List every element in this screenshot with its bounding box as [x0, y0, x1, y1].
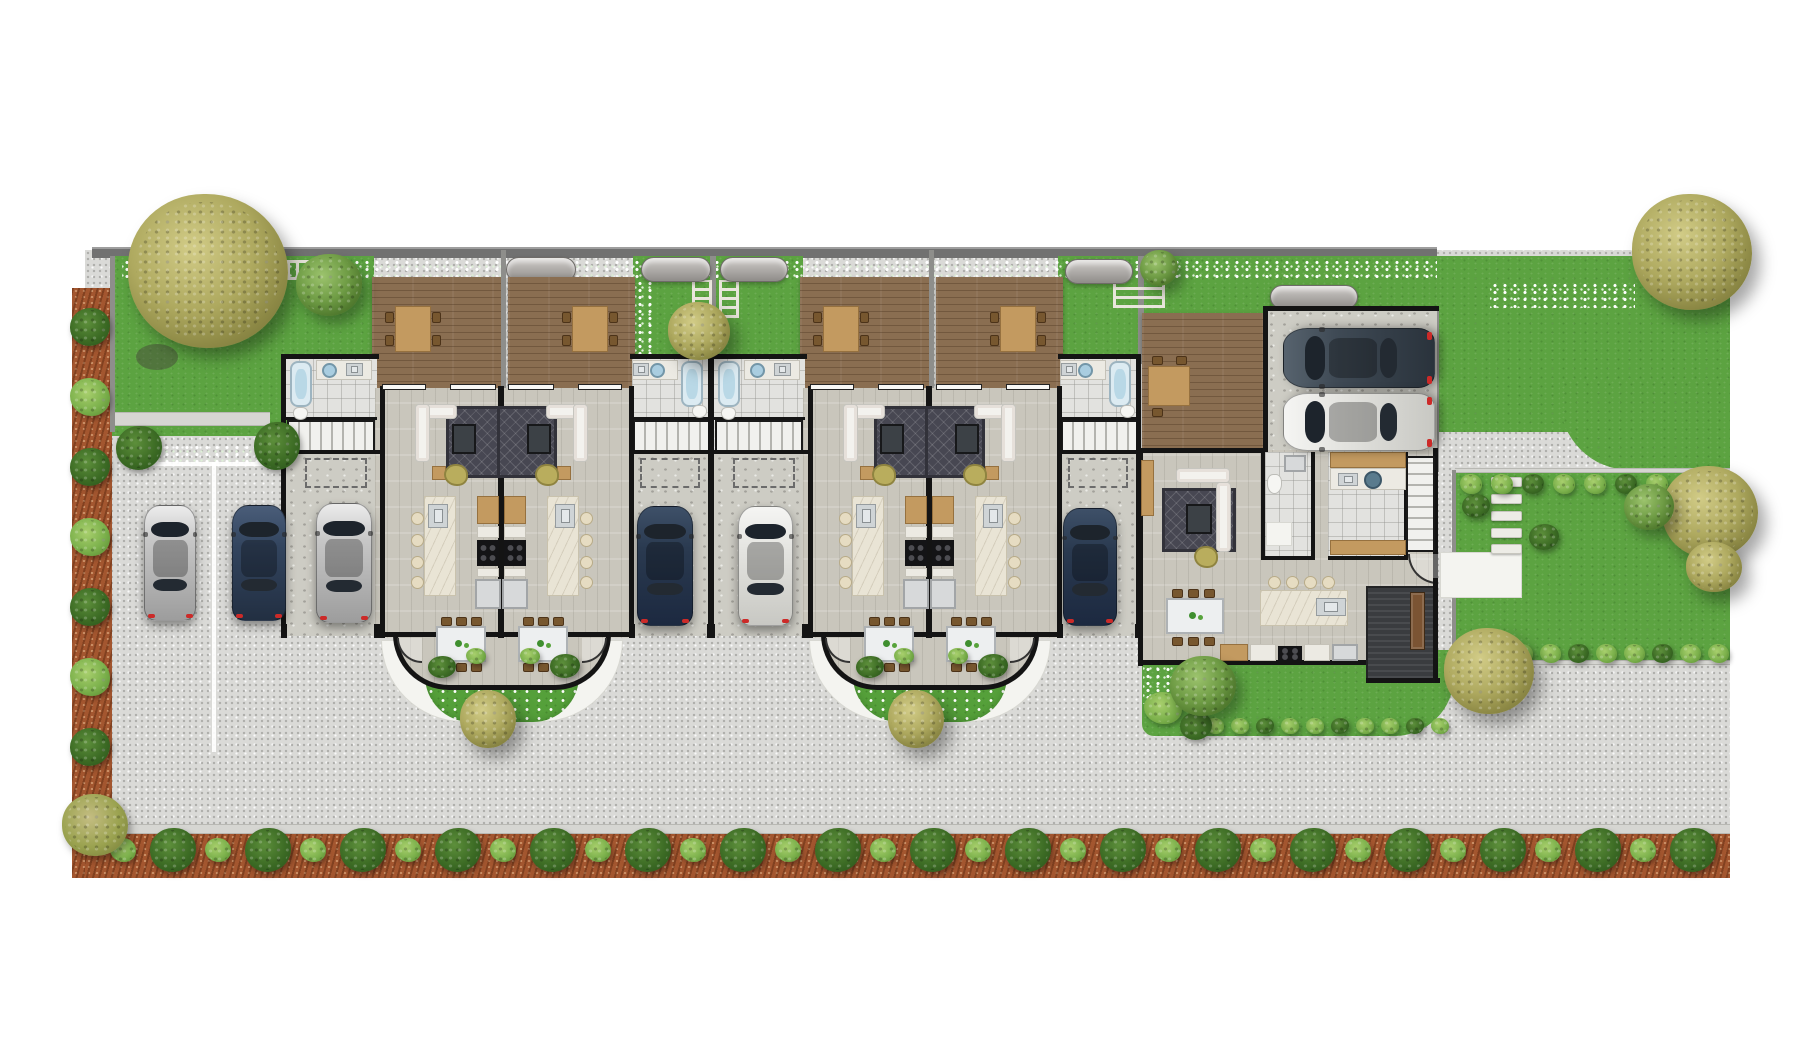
duplex-b-deck1-table — [823, 306, 859, 352]
boundary-hedge-bottom-light-4 — [490, 838, 516, 862]
car-garage-white-tl-r — [1427, 397, 1432, 405]
duplex-b-garden-bush-4 — [948, 648, 968, 664]
duplex-b-living1-armchair — [872, 464, 896, 486]
duplex-a-living2-sofa-b — [573, 404, 588, 462]
righthouse-appliance-2 — [1250, 644, 1276, 661]
car-carport4-navy-roof — [1072, 544, 1108, 581]
duplex-a-kitchen2-cabinet — [504, 496, 526, 524]
car-carport2-navy-body — [637, 506, 693, 626]
boundary-hedge-left-5 — [70, 658, 110, 696]
duplex-b-wall-bath2-top — [1058, 354, 1141, 359]
car-carport1-silver-mir-r — [368, 531, 373, 536]
righthouse-bath-wall-right — [1311, 452, 1315, 560]
duplex-a-deck2-chair-1 — [562, 312, 571, 323]
boundary-hedge-left-1 — [70, 378, 110, 416]
car-garage-suv — [1283, 328, 1433, 386]
righthouse-coffee-table — [1186, 504, 1212, 534]
car-carport2-navy — [637, 506, 691, 624]
duplex-b-deck1-chair-4 — [860, 335, 869, 346]
duplex-b-garden-bush-3 — [894, 648, 914, 664]
righthouse-deck-table — [1148, 366, 1190, 406]
duplex-a-deck1-chair-4 — [432, 335, 441, 346]
duplex-a-living1-sofa-b — [415, 404, 430, 462]
duplex-b-dining1-chair-6 — [899, 663, 910, 672]
duplex-a-deck1-chair-2 — [385, 335, 394, 346]
duplex-b-kitchen1-fridge — [903, 579, 929, 609]
car-parking-blue-tl-r — [275, 614, 282, 618]
rightband-hedge-top-4 — [1584, 474, 1606, 494]
car-carport4-navy-mir-l — [1062, 536, 1067, 541]
duplex-b-wall-stub-1 — [709, 624, 715, 638]
car-parking-silver-mir-l — [143, 532, 148, 537]
duplex-b-living2-side-table — [985, 466, 999, 480]
water-tank-2 — [641, 257, 711, 282]
car-carport1-silver-tl-r — [361, 616, 369, 620]
hedge-rows-righthouse — [1113, 284, 1165, 308]
boundary-hedge-bottom-light-13 — [1345, 838, 1371, 862]
duplex-b-wall-stub-2 — [802, 624, 808, 638]
boundary-hedge-bottom-light-12 — [1250, 838, 1276, 862]
duplex-a-deck2-chair-4 — [609, 335, 618, 346]
duplex-b-garden-tree — [888, 690, 944, 748]
car-carport2-navy-glass-f — [644, 524, 685, 539]
car-carport3-white-body — [738, 506, 793, 626]
duplex-a-living1-armchair — [444, 464, 468, 486]
righthouse-shelf — [1141, 460, 1154, 516]
righthouse-porch-wall-right — [1433, 578, 1438, 683]
rightband-hedge-top-0 — [1460, 474, 1482, 494]
car-parking-silver-glass-f — [151, 522, 189, 537]
rightband-hedge-top-1 — [1491, 474, 1513, 494]
duplex-b-window-2 — [878, 384, 924, 390]
car-carport4-navy — [1063, 508, 1115, 624]
car-carport3-white-mir-l — [737, 534, 742, 539]
boundary-hedge-bottom-light-11 — [1155, 838, 1181, 862]
car-parking-blue-roof — [241, 540, 277, 576]
duplex-a-wall-stub-1 — [281, 624, 287, 638]
righthouse-kitchen-cooktop-round — [1364, 471, 1382, 489]
car-garage-white — [1283, 393, 1433, 449]
duplex-a-living2-armchair — [535, 464, 559, 486]
rightband-hedge-top-3 — [1553, 474, 1575, 494]
site-plan — [0, 0, 1800, 1062]
duplex-b-kitchen2-stool-4 — [1008, 576, 1021, 589]
duplex-a-kitchen1-fridge — [475, 579, 501, 609]
car-carport2-navy-tl-r — [682, 619, 690, 623]
righthouse-armchair — [1194, 546, 1218, 568]
tree-rightband-3 — [1624, 484, 1674, 530]
duplex-a-wall-bath1-top — [283, 354, 379, 359]
righthouse-stool-3 — [1304, 576, 1317, 589]
duplex-a-kitchen2-stool-1 — [580, 512, 593, 525]
righthouse-side-patio — [1440, 552, 1522, 598]
duplex-a-kitchen1-stool-1 — [411, 512, 424, 525]
duplex-b-living2-armchair — [963, 464, 987, 486]
duplex-b-bath2-toilet — [1120, 405, 1135, 418]
duplex-a-garden-tree — [460, 690, 516, 748]
duplex-b-wall-carport2-top — [1058, 450, 1141, 454]
boundary-hedge-bottom-light-2 — [300, 838, 326, 862]
car-parking-blue-body — [232, 505, 286, 621]
duplex-a-deck1-table — [395, 306, 431, 352]
duplex-a-window-3 — [508, 384, 554, 390]
tree-shadow-disc — [136, 344, 178, 370]
duplex-b-kitchen2-island-sink — [983, 504, 1003, 528]
duplex-a-wall-carport1-living — [380, 386, 385, 638]
boundary-hedge-bottom-light-5 — [585, 838, 611, 862]
duplex-b-living2-sofa-b — [1001, 404, 1016, 462]
car-garage-white-glass-r — [1380, 403, 1397, 441]
duplex-b-kitchen1-cooktop — [905, 540, 927, 566]
car-garage-suv-tl-r — [1427, 332, 1432, 340]
duplex-a-dining1-chair-1 — [441, 617, 452, 626]
duplex-a-deck-1 — [372, 277, 503, 389]
car-carport1-silver-tl-l — [320, 616, 328, 620]
duplex-a-deck2-table — [572, 306, 608, 352]
righthouse-appliance-3 — [1278, 646, 1302, 661]
duplex-b-window-1 — [810, 384, 854, 390]
righthouse-dining-chair-5 — [1188, 637, 1199, 646]
car-parking-silver-glass-r — [153, 579, 187, 592]
duplex-b-bath1-toilet — [721, 407, 736, 420]
duplex-b-wall-bath1-top — [711, 354, 807, 359]
duplex-a-kitchen1-island-sink — [428, 504, 448, 528]
righthouse-sofa-a — [1176, 468, 1230, 483]
righthouse-stool-4 — [1322, 576, 1335, 589]
car-parking-blue-glass-r — [241, 579, 276, 592]
boundary-hedge-left-3 — [70, 518, 110, 556]
car-garage-white-tl-l — [1427, 439, 1432, 447]
car-garage-white-roof — [1329, 402, 1377, 441]
duplex-a-dining2-chair-5 — [538, 663, 549, 672]
frontgarden-hedge-1 — [1231, 718, 1249, 734]
duplex-a-living2-coffee-table — [527, 424, 551, 454]
car-parking-silver-mir-r — [193, 532, 198, 537]
boundary-hedge-bottom-light-14 — [1440, 838, 1466, 862]
topleft-path — [110, 412, 270, 426]
duplex-a-kitchen2-cooktop — [504, 540, 526, 566]
rightband-hedge-bottom-6 — [1680, 644, 1701, 663]
car-carport3-white — [738, 506, 791, 624]
car-carport4-navy-tl-r — [1106, 619, 1113, 623]
car-garage-suv-glass-f — [1305, 336, 1325, 380]
duplex-a-stairs-1 — [287, 420, 375, 453]
righthouse-porch-wall-bottom — [1366, 678, 1440, 683]
lawn-fence-left — [110, 256, 115, 432]
tree-front-garden — [1170, 656, 1236, 716]
car-carport1-silver-mir-l — [315, 531, 320, 536]
car-parking-blue-mir-l — [231, 532, 236, 537]
car-carport1-silver-glass-r — [326, 580, 363, 593]
righthouse-toilet — [1267, 474, 1282, 494]
duplex-a-deck2-chair-3 — [609, 312, 618, 323]
car-parking-blue-glass-f — [239, 522, 279, 537]
righthouse-dining-table — [1166, 598, 1224, 634]
car-parking-blue — [232, 505, 284, 619]
righthouse-deck-chair-3 — [1152, 408, 1163, 417]
tree-rightband-2 — [1686, 542, 1742, 592]
righthouse-washer — [1284, 455, 1306, 472]
righthouse-dining-chair-1 — [1172, 589, 1183, 598]
righthouse-appliance-5 — [1332, 644, 1358, 661]
duplex-b-kitchen2-counter — [932, 526, 954, 538]
duplex-b-bath1-basin — [750, 363, 765, 378]
duplex-a-bath2-tub — [681, 361, 703, 407]
duplex-a-dining1-chair-3 — [471, 617, 482, 626]
duplex-a-kitchen2-stool-4 — [580, 576, 593, 589]
car-carport4-navy-glass-r — [1072, 583, 1107, 596]
car-carport2-navy-roof — [646, 542, 684, 580]
duplex-a-dining1-chair-2 — [456, 617, 467, 626]
tree-front-right — [1444, 628, 1534, 714]
boundary-hedge-bottom-light-3 — [395, 838, 421, 862]
righthouse-kitchen-cab-top — [1330, 452, 1406, 468]
righthouse-island-sink — [1316, 598, 1346, 616]
duplex-b-kitchen2-stool-3 — [1008, 556, 1021, 569]
rightlawn-flower-patch — [1490, 282, 1635, 308]
duplex-b-bath2-basin — [1078, 363, 1093, 378]
rightband-hedge-bottom-4 — [1624, 644, 1645, 663]
duplex-a-bath2-basin — [650, 363, 665, 378]
duplex-b-deck1-chair-3 — [860, 312, 869, 323]
car-carport3-white-glass-r — [747, 583, 783, 596]
duplex-a-dining2-chair-1 — [523, 617, 534, 626]
righthouse-sofa-b — [1216, 482, 1231, 552]
duplex-a-bath2-toilet — [692, 405, 707, 418]
righthouse-appliance-4 — [1304, 644, 1330, 661]
duplex-a-kitchen1-counter2 — [477, 568, 499, 577]
duplex-a-kitchen1-stool-4 — [411, 576, 424, 589]
car-carport1-silver-glass-f — [323, 521, 364, 536]
midlawn-flower-column — [635, 280, 653, 360]
boundary-hedge-bottom-light-9 — [965, 838, 991, 862]
duplex-a-living2-side-table — [557, 466, 571, 480]
duplex-b-kitchen1-counter2 — [905, 568, 927, 577]
duplex-b-bath1-sink — [774, 363, 791, 376]
righthouse-stool-1 — [1268, 576, 1281, 589]
righthouse-kitchen-cab-bottom — [1330, 540, 1406, 555]
duplex-b-kitchen1-stool-3 — [839, 556, 852, 569]
duplex-a-window-4 — [578, 384, 622, 390]
duplex-b-wall-carport1-living — [808, 386, 813, 638]
car-parking-blue-mir-r — [282, 532, 287, 537]
duplex-b-stairs-2 — [1061, 420, 1139, 453]
car-carport3-white-mir-r — [789, 534, 794, 539]
duplex-a-wall-living2-carport2 — [629, 386, 634, 638]
car-garage-white-mir-l — [1319, 447, 1325, 452]
car-garage-white-mir-r — [1319, 392, 1325, 397]
frontgarden-hedge-4 — [1306, 718, 1324, 734]
stepping-stone-5 — [1491, 544, 1522, 554]
stepping-stone-3 — [1491, 511, 1522, 521]
car-carport4-navy-body — [1063, 508, 1117, 626]
duplex-b-dining2-chair-2 — [966, 617, 977, 626]
righthouse-appliance-1 — [1220, 644, 1248, 661]
duplex-b-wall-bottom — [805, 632, 1061, 637]
duplex-b-bath1-tub — [718, 361, 740, 407]
rightband-hedge-bottom-3 — [1596, 644, 1617, 663]
duplex-b-deck2-chair-4 — [1037, 335, 1046, 346]
car-carport3-white-glass-f — [745, 524, 785, 539]
rightband-hedge-bottom-1 — [1540, 644, 1561, 663]
tree-duplexa-corner — [296, 254, 362, 316]
duplex-b-dash-pad-1 — [733, 458, 795, 488]
duplex-b-living1-coffee-table — [880, 424, 904, 454]
duplex-a-kitchen2-stool-3 — [580, 556, 593, 569]
duplex-b-kitchen1-stool-4 — [839, 576, 852, 589]
car-carport4-navy-glass-f — [1070, 525, 1110, 540]
righthouse-bath-wall-bottom — [1261, 556, 1315, 560]
duplex-b-living1-sofa-b — [843, 404, 858, 462]
duplex-a-bath1-tub — [290, 361, 312, 407]
frontgarden-hedge-3 — [1281, 718, 1299, 734]
boundary-hedge-bottom-light-6 — [680, 838, 706, 862]
car-garage-suv-roof — [1329, 338, 1377, 379]
car-carport1-silver — [316, 503, 370, 621]
duplex-b-dining2-chair-3 — [981, 617, 992, 626]
rightband-hedge-bottom-7 — [1708, 644, 1729, 663]
car-garage-suv-glass-r — [1380, 338, 1397, 377]
righthouse-garage-wall-top — [1263, 306, 1439, 311]
duplex-b-kitchen1-counter — [905, 526, 927, 538]
duplex-b-bath2-sink — [1061, 363, 1077, 376]
duplex-b-dining2-chair-1 — [951, 617, 962, 626]
duplex-b-deck1-chair-1 — [813, 312, 822, 323]
stepping-stone-2 — [1491, 494, 1522, 504]
duplex-b-kitchen2-cooktop — [932, 540, 954, 566]
righthouse-deck-chair-1 — [1152, 356, 1163, 365]
duplex-b-kitchen1-island-sink — [856, 504, 876, 528]
water-tank-3 — [720, 257, 788, 282]
duplex-a-kitchen2-island-sink — [555, 504, 575, 528]
duplex-a-garden-bush-3 — [466, 648, 486, 664]
righthouse-dining-chair-6 — [1204, 637, 1215, 646]
duplex-a-deck1-chair-3 — [432, 312, 441, 323]
boundary-hedge-bottom-light-8 — [870, 838, 896, 862]
duplex-a-dash-pad-2 — [640, 458, 700, 488]
duplex-b-living2-coffee-table — [955, 424, 979, 454]
bush-corner-bottomleft — [62, 794, 128, 856]
righthouse-entry-door — [1410, 592, 1425, 650]
car-parking-silver-roof — [153, 540, 188, 576]
bottom-curb — [85, 824, 1730, 834]
duplex-b-deck2-table — [1000, 306, 1036, 352]
duplex-b-window-3 — [936, 384, 982, 390]
boundary-hedge-bottom-light-16 — [1630, 838, 1656, 862]
duplex-b-deck2-chair-2 — [990, 335, 999, 346]
tree-mid-lawn — [668, 302, 730, 360]
duplex-b-wall-carport1-top — [711, 450, 811, 454]
car-carport3-white-tl-r — [782, 619, 789, 623]
boundary-hedge-bottom-light-15 — [1535, 838, 1561, 862]
duplex-a-dining2-chair-4 — [523, 663, 534, 672]
duplex-a-kitchen1-stool-3 — [411, 556, 424, 569]
duplex-a-bath1-basin — [322, 363, 337, 378]
righthouse-bath-wall-left — [1261, 452, 1265, 560]
duplex-a-bath2-sink — [633, 363, 649, 376]
car-parking-silver-body — [144, 505, 196, 621]
duplex-a-living1-coffee-table — [452, 424, 476, 454]
duplex-b-dining1-chair-3 — [899, 617, 910, 626]
frontgarden-hedge-6 — [1356, 718, 1374, 734]
duplex-a-bath1-toilet — [293, 407, 308, 420]
duplex-a-wall-carport2-top — [630, 450, 713, 454]
car-garage-white-body — [1283, 393, 1435, 451]
left-mulch — [72, 288, 112, 878]
car-parking-blue-tl-l — [236, 614, 243, 618]
righthouse-dining-chair-3 — [1204, 589, 1215, 598]
boundary-hedge-bottom-light-1 — [205, 838, 231, 862]
car-carport1-silver-roof — [325, 539, 363, 577]
car-carport4-navy-tl-l — [1067, 619, 1074, 623]
car-carport2-navy-mir-l — [636, 534, 641, 539]
righthouse-shower — [1266, 522, 1292, 546]
boundary-hedge-bottom-light-7 — [775, 838, 801, 862]
car-carport1-silver-body — [316, 503, 372, 623]
duplex-b-deck-1 — [800, 277, 931, 389]
car-carport2-navy-mir-r — [689, 534, 694, 539]
duplex-b-kitchen2-cabinet — [932, 496, 954, 524]
tree-righthouse-rear — [1140, 250, 1178, 286]
duplex-a-deck1-chair-1 — [385, 312, 394, 323]
duplex-b-kitchen1-cabinet — [905, 496, 927, 524]
duplex-b-dining1-chair-5 — [884, 663, 895, 672]
righthouse-kitchen-wall-bottom — [1328, 556, 1408, 560]
duplex-a-dining2-chair-2 — [538, 617, 549, 626]
car-garage-suv-mir-r — [1319, 327, 1325, 332]
duplex-b-dining1-chair-1 — [869, 617, 880, 626]
duplex-b-stairs-1 — [715, 420, 803, 453]
duplex-a-wall-stub-3 — [629, 624, 635, 638]
duplex-b-deck2-chair-1 — [990, 312, 999, 323]
duplex-b-wall-stub-3 — [1057, 624, 1063, 638]
righthouse-stairs — [1406, 456, 1435, 552]
duplex-b-kitchen2-fridge — [930, 579, 956, 609]
duplex-b-window-4 — [1006, 384, 1050, 390]
duplex-a-dining2-chair-3 — [553, 617, 564, 626]
righthouse-dining-chair-4 — [1172, 637, 1183, 646]
duplex-a-dining1-chair-6 — [471, 663, 482, 672]
duplex-b-kitchen1-stool-2 — [839, 534, 852, 547]
tree-topleft-large — [128, 194, 288, 348]
car-carport3-white-roof — [747, 542, 784, 580]
frontgarden-hedge-9 — [1431, 718, 1449, 734]
frontgarden-hedge-7 — [1381, 718, 1399, 734]
duplex-a-deck-divider-fence — [501, 250, 506, 390]
righthouse-north-wall — [1138, 448, 1268, 453]
duplex-a-bath1-sink — [346, 363, 363, 376]
duplex-b-dining2-chair-5 — [966, 663, 977, 672]
duplex-b-bath2-tub — [1109, 361, 1131, 407]
righthouse-entry-porch — [1366, 586, 1436, 680]
car-carport3-white-tl-l — [742, 619, 749, 623]
duplex-a-kitchen1-counter — [477, 526, 499, 538]
duplex-a-wall-stub-2 — [374, 624, 380, 638]
car-carport2-navy-tl-l — [641, 619, 649, 623]
car-parking-silver-tl-l — [148, 614, 155, 618]
car-garage-suv-body — [1283, 328, 1435, 388]
righthouse-deck-chair-2 — [1176, 356, 1187, 365]
duplex-a-garden-bush-4 — [520, 648, 540, 664]
duplex-a-dining1-chair-5 — [456, 663, 467, 672]
duplex-a-kitchen2-counter2 — [504, 568, 526, 577]
car-parking-silver — [144, 505, 194, 619]
duplex-b-deck-divider-fence — [929, 250, 934, 390]
duplex-a-deck2-chair-2 — [562, 335, 571, 346]
duplex-b-wall-living2-carport2 — [1057, 386, 1062, 638]
duplex-b-kitchen2-stool-1 — [1008, 512, 1021, 525]
duplex-a-stairs-2 — [633, 420, 711, 453]
